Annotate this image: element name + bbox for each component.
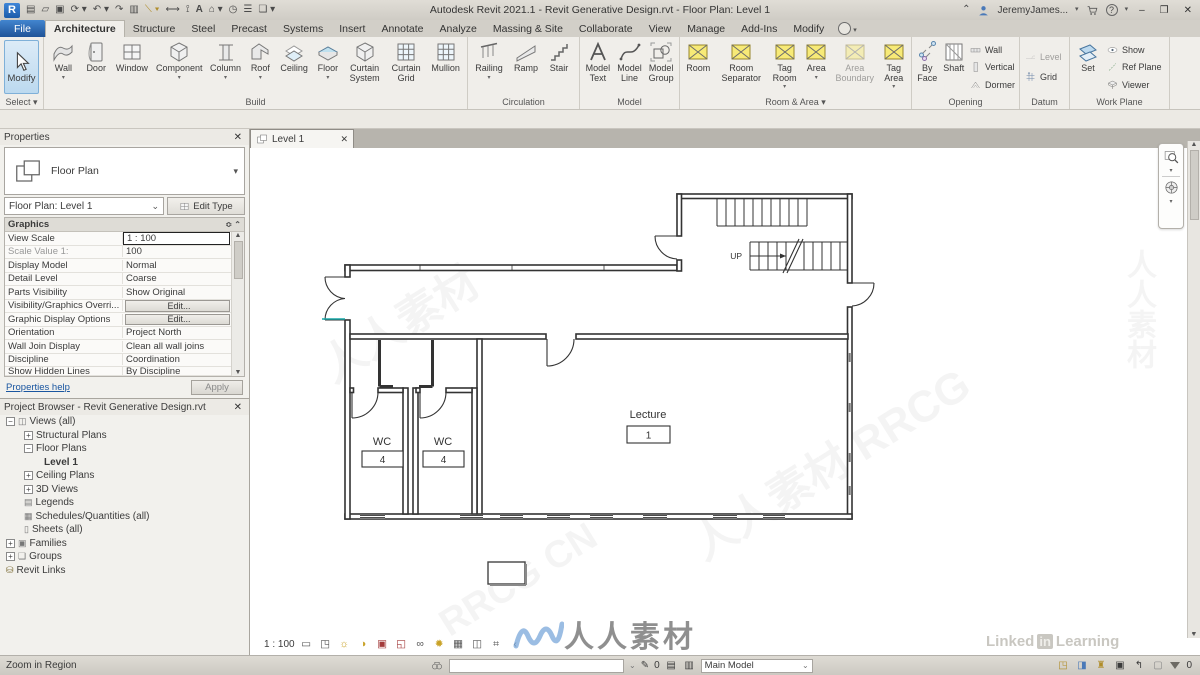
prop-row-parts-visibility[interactable]: Parts Visibility Show Original — [5, 286, 244, 300]
properties-scrollbar[interactable]: ▲ ▼ — [231, 232, 244, 376]
editable-only-icon[interactable]: ◨ — [1075, 660, 1088, 671]
project-browser: Project Browser - Revit Generative Desig… — [0, 398, 249, 577]
exclude-options-icon[interactable]: ↰ — [1132, 660, 1145, 671]
view-control-bar: 1 : 100 ▭ ◳ ☼ ◑ ▣ ◱ ∞ ✹ ▦ ◫ ⌗ ‹ — [264, 637, 523, 651]
panel-room-area: Room Room Separator Tag Room▾ Area▾ Area… — [680, 37, 912, 109]
minimize-button[interactable]: – — [1135, 5, 1149, 16]
view-tab-strip: Level 1 ✕ — [250, 129, 1200, 148]
project-browser-title: Project Browser - Revit Generative Desig… — [4, 402, 206, 413]
prop-row-display-model[interactable]: Display Model Normal — [5, 259, 244, 273]
collapse-icon[interactable]: − — [6, 417, 15, 426]
properties-title: Properties — [4, 132, 50, 143]
status-hint: Zoom in Region — [0, 660, 77, 671]
group-label-datum[interactable]: Datum — [1020, 96, 1069, 109]
mullion-icon — [433, 40, 459, 64]
window-button[interactable]: Window — [112, 38, 153, 96]
tag-area-button[interactable]: Tag Area▾ — [878, 38, 909, 96]
window-icon — [119, 40, 145, 64]
tab-file[interactable]: File — [0, 20, 45, 37]
tab-collaborate[interactable]: Collaborate — [571, 21, 641, 37]
entrance-door-leaf-2 — [325, 299, 345, 321]
selection-count: 0 — [654, 660, 660, 671]
room-tag-wc1[interactable]: 4 — [380, 455, 386, 466]
area-boundary-icon — [842, 40, 868, 64]
stair[interactable] — [717, 198, 848, 273]
right-exit-door — [852, 283, 874, 306]
model-line-button[interactable]: Model Line — [614, 38, 646, 96]
title-bar: R ▤ ▱ ▣ ⟳ ▾ ↶ ▾ ↷ ▥ ⟍ ▾ ⟷ ⟟ A ⌂ ▾ ◷ ☰ ❏ … — [0, 0, 1200, 20]
visibility-edit-button[interactable]: Edit... — [125, 300, 230, 312]
prop-row-detail-level[interactable]: Detail Level Coarse — [5, 273, 244, 287]
group-label-model[interactable]: Model — [580, 96, 679, 109]
ref-plane-icon — [1106, 61, 1119, 73]
aligned-dimension-icon[interactable]: ⟷ — [166, 3, 180, 17]
view-tab-close-icon[interactable]: ✕ — [340, 134, 348, 145]
opening-small-column: Wall Vertical Dormer — [967, 38, 1017, 96]
browser-collapse-icon[interactable]: ⌄ — [1190, 628, 1197, 637]
temporary-view-properties-icon[interactable]: ▦ — [451, 637, 466, 651]
tab-manage[interactable]: Manage — [679, 21, 733, 37]
families-icon: ▣ — [18, 538, 27, 549]
options-bar — [0, 110, 1200, 129]
tab-systems[interactable]: Systems — [275, 21, 331, 37]
prop-row-wall-join-display[interactable]: Wall Join Display Clean all wall joins — [5, 340, 244, 354]
tree-item-floor-plans[interactable]: −Floor Plans — [0, 442, 249, 456]
legends-icon: ▤ — [24, 497, 33, 508]
type-selector-caret-icon[interactable]: ▾ — [227, 166, 244, 177]
project-browser-close-icon[interactable]: ✕ — [231, 402, 245, 413]
roof-button[interactable]: Roof▾ — [245, 38, 276, 96]
door-icon — [83, 40, 109, 64]
furniture-table[interactable] — [488, 562, 526, 585]
instance-selector-caret-icon[interactable]: ⌄ — [151, 201, 159, 212]
prop-row-show-hidden-lines[interactable]: Show Hidden Lines By Discipline — [5, 367, 244, 376]
railing-button[interactable]: Railing▾ — [470, 38, 508, 96]
tree-item-families[interactable]: +▣Families — [0, 537, 249, 551]
tab-view[interactable]: View — [641, 21, 680, 37]
show-work-plane-icon — [1106, 44, 1119, 56]
section-collapse-icon[interactable]: ≎ ⌃ — [225, 220, 241, 229]
tab-modify[interactable]: Modify — [785, 21, 832, 37]
tree-item-views[interactable]: −◫Views (all) — [0, 415, 249, 429]
graphic-display-edit-button[interactable]: Edit... — [125, 314, 230, 326]
entrance-door-leaf-1 — [325, 277, 345, 299]
maximize-button[interactable]: ❐ — [1156, 5, 1173, 16]
mullion-button[interactable]: Mullion — [426, 38, 465, 96]
panel-model: Model Text Model Line Model Group Model — [580, 37, 680, 109]
help-icon[interactable]: ? — [1106, 4, 1118, 16]
curtain-grid-button[interactable]: Curtain Grid — [386, 38, 427, 96]
grid-icon — [1024, 71, 1037, 83]
stair-up-label: UP — [730, 251, 742, 261]
door-button[interactable]: Door — [81, 38, 112, 96]
views-icon[interactable]: ▤ — [26, 3, 35, 17]
prop-row-scale-value[interactable]: Scale Value 1: 100 — [5, 246, 244, 260]
scroll-up-icon[interactable]: ▲ — [235, 232, 242, 239]
group-label-circulation[interactable]: Circulation — [468, 96, 579, 109]
edit-type-button[interactable]: Edit Type — [167, 197, 245, 215]
room-button[interactable]: Room — [682, 38, 715, 96]
tree-item-groups[interactable]: +❏Groups — [0, 550, 249, 564]
room-separator-button[interactable]: Room Separator — [715, 38, 768, 96]
prop-row-graphic-display-options[interactable]: Graphic Display Options Edit... — [5, 313, 244, 327]
show-analytical-icon[interactable]: ◫ — [470, 637, 485, 651]
ribbon-collapse-caret-icon[interactable]: ▾ — [853, 26, 857, 34]
tree-item-revit-links[interactable]: ⛁Revit Links — [0, 564, 249, 578]
panel-opening: By Face Shaft Wall Vertical Dormer Openi… — [912, 37, 1020, 109]
print-icon[interactable]: ▥ — [129, 3, 138, 17]
user-menu-caret-icon[interactable]: ▾ — [1075, 5, 1079, 13]
save-icon[interactable]: ▣ — [55, 3, 64, 17]
viewer-button[interactable]: Viewer — [1106, 79, 1162, 91]
dormer-opening-icon — [969, 79, 982, 91]
curtain-system-button[interactable]: Curtain System — [343, 38, 385, 96]
prop-row-view-scale[interactable]: View Scale 1 : 100 — [5, 232, 244, 246]
cart-icon[interactable] — [1086, 4, 1099, 17]
edit-type-icon — [179, 201, 190, 212]
apply-button[interactable]: Apply — [191, 380, 243, 395]
viewbar-collapse-icon[interactable]: ‹ — [508, 637, 523, 651]
tree-item-sheets[interactable]: ▯Sheets (all) — [0, 523, 249, 537]
prop-row-discipline[interactable]: Discipline Coordination — [5, 354, 244, 368]
floor-plan-view-icon — [256, 133, 268, 145]
design-options-icon[interactable]: ▤ — [665, 660, 678, 671]
wall-opening-icon — [969, 44, 982, 56]
room-icon — [685, 40, 711, 64]
worksharing-display-icon[interactable]: ◳ — [1056, 660, 1069, 671]
ref-plane-button[interactable]: Ref Plane — [1106, 61, 1162, 73]
room-label-wc1[interactable]: WC — [373, 436, 391, 448]
left-dock: Properties ✕ Floor Plan ▾ Floor Plan: Le… — [0, 129, 250, 655]
design-option-caret-icon[interactable]: ⌄ — [802, 661, 809, 670]
view-scale-control[interactable]: 1 : 100 — [264, 639, 295, 650]
ceiling-button[interactable]: Ceiling — [276, 38, 313, 96]
workset-status-icon[interactable]: ♜ — [1094, 660, 1107, 671]
model-text-icon — [585, 40, 611, 64]
group-label-work-plane[interactable]: Work Plane — [1070, 96, 1169, 109]
shadows-icon[interactable]: ◑ — [356, 637, 371, 651]
column-button[interactable]: Column▾ — [206, 38, 245, 96]
floor-icon — [315, 40, 341, 64]
datum-small-column: Level Grid — [1022, 38, 1064, 96]
area-button[interactable]: Area▾ — [801, 38, 831, 96]
properties-palette: Properties ✕ Floor Plan ▾ Floor Plan: Le… — [0, 129, 249, 395]
crop-view-icon[interactable]: ▣ — [375, 637, 390, 651]
floor-button[interactable]: Floor▾ — [312, 38, 343, 96]
wc1-door — [352, 392, 378, 418]
floor-plan-type-icon — [13, 156, 43, 186]
lecture-door — [547, 339, 574, 366]
railing-icon — [476, 40, 502, 64]
scroll-down-icon[interactable]: ▼ — [235, 369, 242, 376]
temporary-hide-isolate-icon[interactable]: ∞ — [413, 637, 428, 651]
panel-work-plane: Set Show Ref Plane Viewer Work Plane — [1070, 37, 1170, 109]
open-icon[interactable]: ▱ — [41, 3, 49, 17]
room-separator-icon — [728, 40, 754, 64]
tab-precast[interactable]: Precast — [223, 21, 275, 37]
component-icon — [166, 40, 192, 64]
revit-links-icon: ⛁ — [6, 565, 14, 576]
expand-icon[interactable]: + — [24, 485, 33, 494]
show-work-plane-button[interactable]: Show — [1106, 44, 1162, 56]
status-bar: Zoom in Region ⌄ ✎ 0 ▤ ▥ Main Model ⌄ ◳ … — [0, 655, 1200, 675]
search-icon[interactable]: ⌃ — [962, 3, 970, 17]
modify-button[interactable]: Modify — [4, 40, 39, 94]
component-button[interactable]: Component▾ — [152, 38, 206, 96]
tab-massing-site[interactable]: Massing & Site — [485, 21, 571, 37]
floor-plan[interactable]: WC WC Lecture UP 4 4 1 — [250, 148, 1200, 648]
show-crop-icon[interactable]: ◱ — [394, 637, 409, 651]
group-label-build[interactable]: Build — [44, 96, 467, 109]
zoom-tool-icon[interactable] — [1163, 148, 1180, 165]
project-browser-title-bar[interactable]: Project Browser - Revit Generative Desig… — [0, 399, 249, 415]
tree-item-schedules[interactable]: ▦Schedules/Quantities (all) — [0, 510, 249, 524]
default-3d-view-icon[interactable]: ⌂ ▾ — [209, 3, 223, 17]
room-label-wc2[interactable]: WC — [434, 436, 452, 448]
wall-button[interactable]: Wall▾ — [46, 38, 81, 96]
signed-in-user[interactable]: JeremyJames... — [997, 5, 1068, 16]
tree-item-level-1[interactable]: Level 1 — [0, 456, 249, 470]
scroll-thumb[interactable] — [234, 241, 243, 279]
user-avatar-icon — [977, 4, 990, 17]
views-node-icon: ◫ — [18, 416, 27, 427]
section-graphics[interactable]: Graphics ≎ ⌃ — [5, 218, 244, 232]
ramp-icon — [513, 40, 539, 64]
wall-icon — [50, 40, 76, 64]
column-icon — [213, 40, 239, 64]
worksets-icon[interactable] — [430, 659, 444, 672]
tag-area-icon — [881, 40, 907, 64]
model-text-button[interactable]: Model Text — [582, 38, 614, 96]
measure-icon[interactable]: ⟍ ▾ — [145, 3, 160, 17]
stair-icon — [546, 40, 572, 64]
scroll-up-icon[interactable]: ▲ — [1191, 141, 1198, 148]
type-selector-label: Floor Plan — [51, 165, 99, 177]
reveal-constraints-icon[interactable]: ⌗ — [489, 637, 504, 651]
view-tab-level-1[interactable]: Level 1 ✕ — [250, 129, 354, 148]
grid-button[interactable]: Grid — [1024, 71, 1062, 83]
curtain-system-icon — [352, 40, 378, 64]
view-scale-value[interactable]: 1 : 100 — [123, 232, 230, 245]
work-plane-small-column: Show Ref Plane Viewer — [1104, 38, 1164, 96]
properties-grid: Graphics ≎ ⌃ View Scale 1 : 100 Scale Va… — [4, 217, 245, 377]
panel-select: Modify Select ▾ — [0, 37, 44, 109]
ceiling-icon — [281, 40, 307, 64]
prop-row-orientation[interactable]: Orientation Project North — [5, 327, 244, 341]
viewer-icon — [1106, 79, 1119, 91]
close-button[interactable]: ✕ — [1180, 5, 1196, 16]
group-label-select[interactable]: Select ▾ — [0, 96, 43, 109]
design-option-select[interactable]: Main Model ⌄ — [701, 659, 813, 673]
properties-help-link[interactable]: Properties help — [6, 382, 70, 393]
model-group-button[interactable]: Model Group — [645, 38, 677, 96]
tree-item-structural-plans[interactable]: +Structural Plans — [0, 429, 249, 443]
group-label-opening[interactable]: Opening — [912, 96, 1019, 109]
tag-room-button[interactable]: Tag Room▾ — [768, 38, 802, 96]
quick-access-toolbar: R ▤ ▱ ▣ ⟳ ▾ ↶ ▾ ↷ ▥ ⟍ ▾ ⟷ ⟟ A ⌂ ▾ ◷ ☰ ❏ … — [0, 3, 275, 18]
area-icon — [803, 40, 829, 64]
room-tag-wc2[interactable]: 4 — [441, 455, 447, 466]
editable-pencil-icon[interactable]: ✎ — [641, 660, 649, 671]
links-icon[interactable]: ▣ — [1113, 660, 1126, 671]
walls — [345, 194, 852, 519]
undo-icon[interactable]: ↶ ▾ — [93, 3, 109, 17]
dormer-opening-button[interactable]: Dormer — [969, 79, 1015, 91]
zoom-tool-caret-icon[interactable]: ▾ — [1169, 167, 1172, 174]
text-icon[interactable]: A — [196, 3, 203, 17]
press-drag-icon[interactable]: ▢ — [1151, 660, 1164, 671]
tree-item-legends[interactable]: ▤Legends — [0, 496, 249, 510]
ramp-button[interactable]: Ramp — [508, 38, 544, 96]
groups-icon: ❏ — [18, 551, 26, 562]
prop-row-visibility-overrides[interactable]: Visibility/Graphics Overri... Edit... — [5, 300, 244, 314]
model-group-icon — [648, 40, 674, 64]
curtain-grid-icon — [393, 40, 419, 64]
reveal-hidden-icon[interactable]: ✹ — [432, 637, 447, 651]
room-tag-lecture[interactable]: 1 — [646, 431, 652, 442]
tab-add-ins[interactable]: Add-Ins — [733, 21, 785, 37]
stair-button[interactable]: Stair — [544, 38, 574, 96]
tag-icon[interactable]: ⟟ — [186, 3, 190, 17]
tab-structure[interactable]: Structure — [125, 21, 184, 37]
tab-steel[interactable]: Steel — [183, 21, 223, 37]
roof-icon — [247, 40, 273, 64]
by-face-button[interactable]: By Face — [914, 38, 940, 96]
by-face-icon — [914, 40, 940, 64]
scroll-thumb[interactable] — [1190, 150, 1199, 220]
redo-icon[interactable]: ↷ — [115, 3, 123, 17]
steering-wheel-icon[interactable] — [1163, 179, 1180, 196]
tab-annotate[interactable]: Annotate — [373, 21, 431, 37]
ribbon-tab-bar: File Architecture Structure Steel Precas… — [0, 20, 1200, 37]
set-work-plane-icon — [1075, 40, 1101, 64]
canvas-vertical-scrollbar[interactable]: ▲ ▼ — [1187, 141, 1200, 638]
room-labels: WC WC Lecture UP — [373, 251, 742, 448]
vertical-opening-icon — [969, 61, 982, 73]
panel-datum: Level Grid Datum — [1020, 37, 1070, 109]
instance-selector[interactable]: Floor Plan: Level 1 ⌄ — [4, 197, 164, 215]
room-label-lecture[interactable]: Lecture — [630, 409, 667, 421]
panel-circulation: Railing▾ Ramp Stair Circulation — [468, 37, 580, 109]
help-caret-icon[interactable]: ▾ — [1125, 5, 1129, 13]
modify-cursor-icon — [11, 51, 33, 73]
visual-style-icon[interactable]: ◳ — [318, 637, 333, 651]
tab-architecture[interactable]: Architecture — [45, 20, 125, 37]
properties-title-bar[interactable]: Properties ✕ — [0, 129, 249, 145]
ribbon: Modify Select ▾ Wall▾ Door Window Compon… — [0, 37, 1200, 110]
detail-level-icon[interactable]: ▭ — [299, 637, 314, 651]
wall-opening-button[interactable]: Wall — [969, 44, 1015, 56]
type-selector[interactable]: Floor Plan ▾ — [4, 147, 245, 195]
tree-item-3d-views[interactable]: +3D Views — [0, 483, 249, 497]
workset-field[interactable] — [449, 659, 624, 673]
collapse-icon[interactable]: − — [24, 444, 33, 453]
expand-icon[interactable]: + — [24, 431, 33, 440]
stair-door — [655, 236, 677, 259]
options-edit-icon[interactable]: ▥ — [683, 660, 696, 671]
expand-icon[interactable]: + — [6, 552, 15, 561]
steering-wheel-caret-icon[interactable]: ▾ — [1169, 198, 1172, 205]
drawing-area[interactable]: Level 1 ✕ 人人素材 人人素材 RRCG 人人素材 RRCG CN — [250, 129, 1200, 655]
filter-icon[interactable] — [1170, 662, 1180, 669]
tag-room-icon — [772, 40, 798, 64]
panel-build: Wall▾ Door Window Component▾ Column▾ Roo… — [44, 37, 468, 109]
wc2-door — [420, 392, 446, 418]
level-button: Level — [1024, 51, 1062, 63]
level-icon — [1024, 51, 1037, 63]
tab-insert[interactable]: Insert — [331, 21, 373, 37]
vertical-opening-button[interactable]: Vertical — [969, 61, 1015, 73]
tab-analyze[interactable]: Analyze — [432, 21, 485, 37]
sheets-icon: ▯ — [24, 524, 29, 535]
group-label-room-area[interactable]: Room & Area ▾ — [680, 96, 911, 109]
sync-icon[interactable]: ⟳ ▾ — [71, 3, 87, 17]
vestibule-walls — [380, 340, 433, 387]
shaft-icon — [941, 40, 967, 64]
tree-item-ceiling-plans[interactable]: +Ceiling Plans — [0, 469, 249, 483]
section-icon[interactable]: ◷ — [229, 3, 238, 17]
schedules-icon: ▦ — [24, 511, 33, 522]
expand-icon[interactable]: + — [24, 471, 33, 480]
set-button[interactable]: Set — [1072, 38, 1104, 96]
ribbon-state-icon[interactable] — [838, 22, 851, 35]
area-boundary-button: Area Boundary — [831, 38, 878, 96]
shaft-button[interactable]: Shaft — [940, 38, 966, 96]
sun-path-icon[interactable]: ☼ — [337, 637, 352, 651]
expand-icon[interactable]: + — [6, 539, 15, 548]
revit-app-menu-icon[interactable]: R — [4, 3, 20, 18]
switch-windows-icon[interactable]: ❏ ▾ — [258, 3, 275, 17]
filter-count: 0 — [1186, 660, 1192, 671]
navigation-bar: ▾ ▾ — [1158, 143, 1184, 229]
model-line-icon — [617, 40, 643, 64]
properties-close-icon[interactable]: ✕ — [231, 132, 245, 143]
workset-caret-icon[interactable]: ⌄ — [629, 661, 636, 670]
thin-lines-icon[interactable]: ☰ — [243, 3, 252, 17]
